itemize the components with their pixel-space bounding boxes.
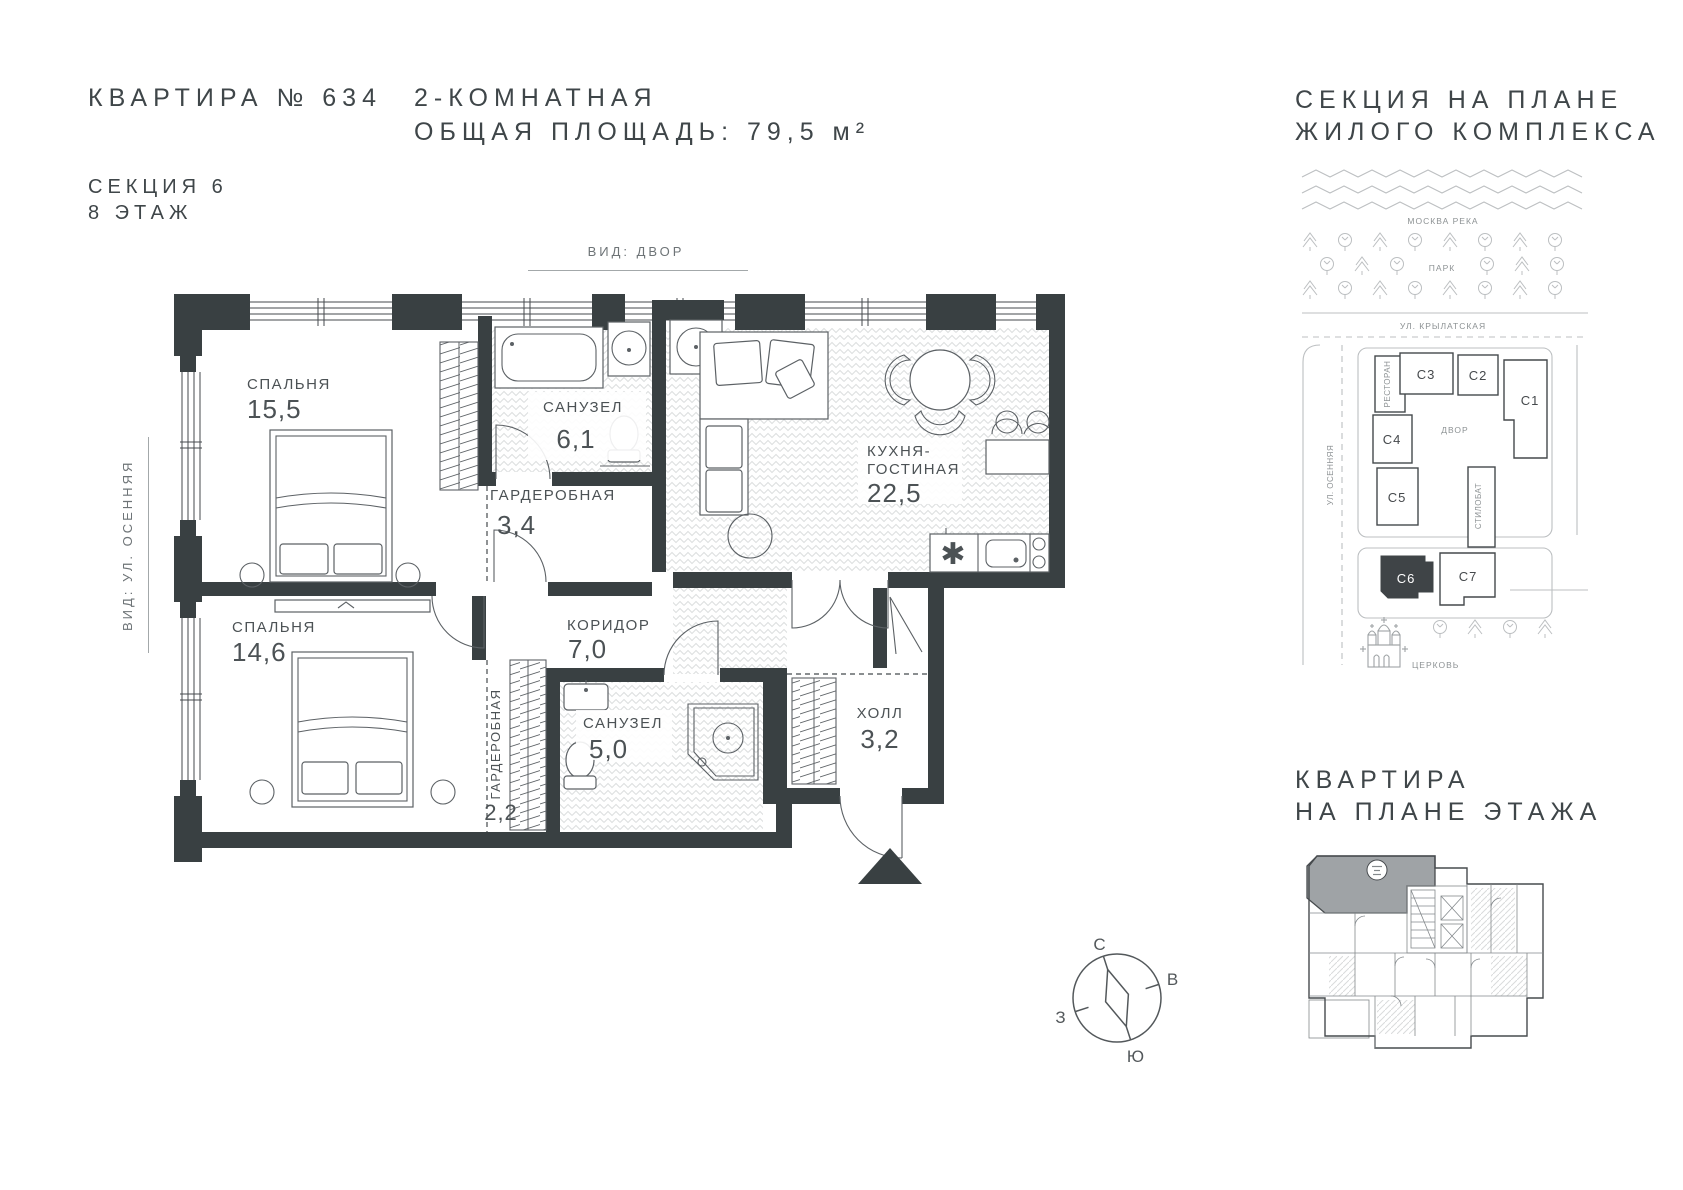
- courtyard-label: ДВОР: [1441, 425, 1468, 435]
- room-label-bedroom2: СПАЛЬНЯ: [232, 619, 316, 636]
- floor-plan-svg: ✱ СПАЛЬНЯ 15,5 САНУЗЕЛ 6,1 ГАРДЕРОБНАЯ 3…: [140, 292, 1070, 892]
- entry-door: [840, 796, 902, 858]
- park-label: ПАРК: [1429, 263, 1455, 273]
- building-c3-label: С3: [1417, 367, 1436, 382]
- hall-niche-door: [890, 597, 922, 654]
- room-area-wardrobe1: 3,4: [497, 510, 536, 540]
- building-c5-label: С5: [1388, 490, 1407, 505]
- apartment-number-title: КВАРТИРА № 634: [88, 84, 382, 113]
- room-area-bathroom1: 6,1: [556, 424, 595, 454]
- compass-circle: [1073, 954, 1161, 1042]
- view-top-label: ВИД: ДВОР: [536, 244, 736, 259]
- restaurant-label: РЕСТОРАН: [1383, 361, 1392, 408]
- stylobate-label: СТИЛОБАТ: [1474, 483, 1483, 529]
- building-c1: [1504, 360, 1547, 458]
- bed-bedroom1: [240, 430, 420, 587]
- terrace: [1309, 1000, 1369, 1038]
- building-c7-label: С7: [1459, 569, 1478, 584]
- park: ПАРК: [1303, 233, 1564, 299]
- view-left-label: ВИД: УЛ. ОСЕННЯЯ: [120, 437, 140, 653]
- compass-needle: [1106, 970, 1129, 1027]
- entrance-arrow-icon: [858, 848, 922, 884]
- church: ЦЕРКОВЬ: [1360, 617, 1459, 670]
- view-top-underline: [528, 270, 748, 271]
- apartment-type-label: 2-КОМНАТНАЯ: [414, 84, 658, 113]
- building-c4-label: С4: [1383, 432, 1402, 447]
- room-label-kitchen-line2: ГОСТИНАЯ: [867, 461, 960, 478]
- closet-bedroom1: [440, 342, 478, 490]
- room-area-bedroom1: 15,5: [247, 394, 302, 424]
- church-icon: [1360, 617, 1408, 667]
- river-label: МОСКВА РЕКА: [1407, 216, 1478, 226]
- console-bedroom2: [275, 600, 430, 612]
- washbasin-bathroom1: [608, 322, 650, 376]
- apartment-badge: [1367, 860, 1387, 880]
- church-label: ЦЕРКОВЬ: [1412, 660, 1459, 670]
- building-c1-label: С1: [1521, 393, 1540, 408]
- room-label-bathroom2: САНУЗЕЛ: [583, 715, 663, 732]
- kitchen-counter: ✱: [930, 528, 1049, 572]
- room-area-bathroom2: 5,0: [589, 734, 628, 764]
- floor-label: 8 ЭТАЖ: [88, 202, 192, 225]
- site-plan-title-line1: СЕКЦИЯ НА ПЛАНЕ: [1295, 84, 1661, 116]
- kitchen-double-door-left: [792, 580, 840, 628]
- compass-east-label: В: [1167, 970, 1179, 989]
- section-label: СЕКЦИЯ 6: [88, 176, 228, 199]
- closet-hall: [792, 678, 836, 784]
- total-area-label: ОБЩАЯ ПЛОЩАДЬ: 79,5 м²: [414, 118, 870, 147]
- washbasin-bathroom2: [564, 680, 608, 710]
- stair-core: [1407, 886, 1467, 953]
- hob-icon: ✱: [940, 538, 965, 571]
- compass-west-label: З: [1055, 1008, 1066, 1027]
- room-label-hall: ХОЛЛ: [857, 705, 904, 722]
- complex-buildings: РЕСТОРАН С3 С2 С1 С4 С5 ДВОР СТИЛОБАТ С6…: [1373, 353, 1547, 605]
- room-label-bedroom1: СПАЛЬНЯ: [247, 376, 331, 393]
- compass-ticks: [1075, 956, 1159, 1040]
- room-label-corridor: КОРИДОР: [567, 617, 650, 634]
- room-area-wardrobe2: 2,2: [484, 800, 518, 825]
- site-plan-title: СЕКЦИЯ НА ПЛАНЕ ЖИЛОГО КОМПЛЕКСА: [1295, 84, 1661, 148]
- floor-map-svg: [1295, 848, 1555, 1058]
- building-c2-label: С2: [1469, 368, 1488, 383]
- site-plan-svg: МОСКВА РЕКА ПАРК УЛ. КРЫЛАТСКАЯ УЛ. ОСЕН…: [1290, 165, 1590, 680]
- site-plan-title-line2: ЖИЛОГО КОМПЛЕКСА: [1295, 116, 1661, 148]
- room-area-kitchen: 22,5: [867, 478, 922, 508]
- floor-map-title-line1: КВАРТИРА: [1295, 764, 1602, 796]
- room-area-corridor: 7,0: [568, 634, 607, 664]
- bed-bedroom2: [250, 652, 455, 807]
- floor-map-title: КВАРТИРА НА ПЛАНЕ ЭТАЖА: [1295, 764, 1602, 828]
- building-c6-label: С6: [1397, 571, 1416, 586]
- room-label-kitchen-line1: КУХНЯ-: [867, 443, 931, 460]
- street-osennyaya: УЛ. ОСЕННЯЯ: [1303, 345, 1342, 665]
- street-top-label: УЛ. КРЫЛАТСКАЯ: [1400, 321, 1486, 331]
- bottom-trees: [1434, 620, 1553, 638]
- compass-north-label: С: [1093, 935, 1106, 954]
- room-label-wardrobe2: ГАРДЕРОБНАЯ: [488, 688, 503, 799]
- room-area-bedroom2: 14,6: [232, 637, 287, 667]
- street-left-label: УЛ. ОСЕННЯЯ: [1326, 445, 1335, 505]
- room-label-wardrobe1: ГАРДЕРОБНАЯ: [490, 487, 616, 504]
- compass-south-label: Ю: [1127, 1047, 1145, 1066]
- bathtub: [495, 327, 603, 388]
- room-area-hall: 3,2: [860, 724, 899, 754]
- compass: С В З Ю: [1042, 923, 1192, 1073]
- street-krylatskaya: УЛ. КРЫЛАТСКАЯ: [1302, 313, 1588, 337]
- river: МОСКВА РЕКА: [1302, 170, 1582, 227]
- room-label-bathroom1: САНУЗЕЛ: [543, 399, 623, 416]
- floor-map-title-line2: НА ПЛАНЕ ЭТАЖА: [1295, 796, 1602, 828]
